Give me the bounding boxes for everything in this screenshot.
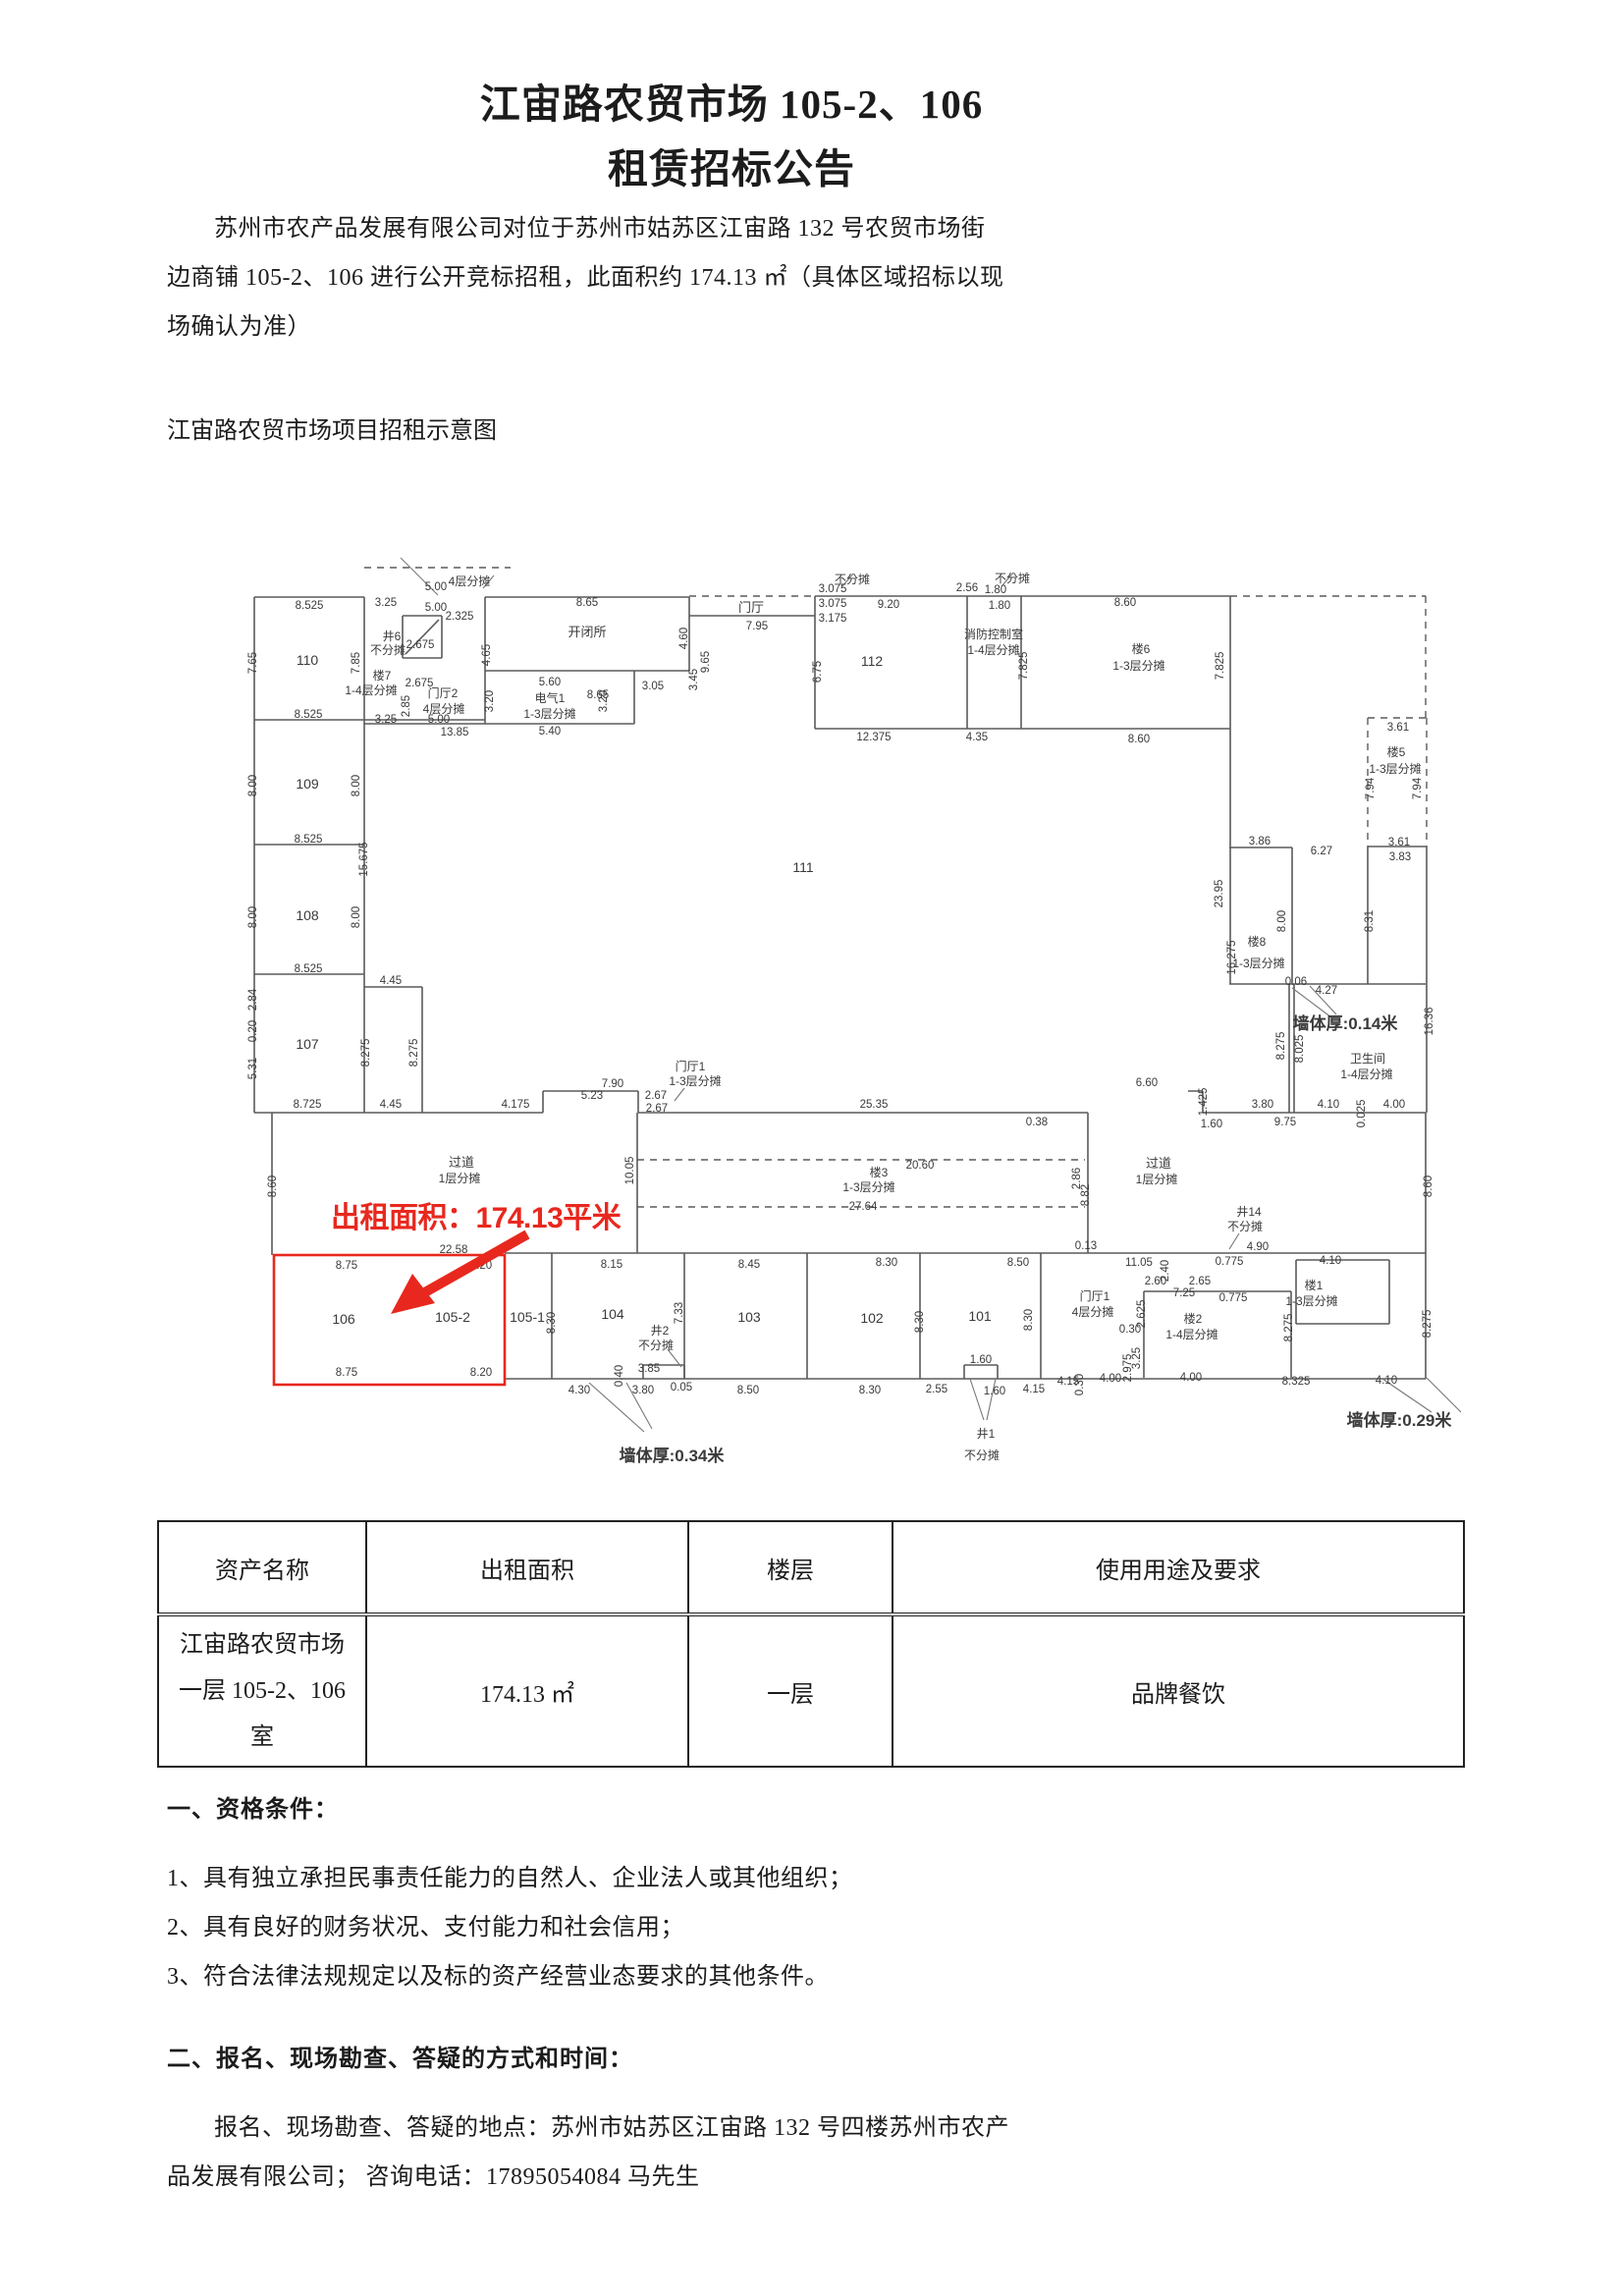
document-page: 江宙路农贸市场 105-2、106 租赁招标公告 苏州市农产品发展有限公司对位于… xyxy=(0,0,1623,2296)
plan-label: 7.825 xyxy=(1018,652,1030,681)
plan-label: 1.80 xyxy=(985,584,1006,596)
plan-label: 卫生间 xyxy=(1350,1052,1385,1066)
room-label: 104 xyxy=(601,1306,624,1322)
floor-plan-diagram: 8.5258.5258.5258.5257.657.858.008.008.00… xyxy=(0,0,1623,1512)
wall xyxy=(964,1365,998,1379)
plan-label: 楼1 xyxy=(1305,1278,1324,1292)
plan-label: 8.025 xyxy=(1294,1035,1306,1064)
plan-label: 4.10 xyxy=(1318,1099,1339,1111)
plan-label: 23.95 xyxy=(1214,880,1225,908)
plan-label: 8.30 xyxy=(914,1311,926,1333)
plan-label: 2.325 xyxy=(446,611,474,623)
plan-label: 1.60 xyxy=(984,1386,1005,1397)
leader-line xyxy=(675,1088,684,1101)
plan-label: 0.30 xyxy=(1074,1374,1086,1395)
plan-label: 3.80 xyxy=(1252,1099,1273,1111)
plan-label: 25.35 xyxy=(860,1099,889,1111)
plan-label: 井2 xyxy=(651,1324,670,1338)
plan-label: 8.275 xyxy=(360,1039,372,1067)
wall xyxy=(1289,984,1426,1113)
plan-label: 13.85 xyxy=(441,727,469,738)
plan-label: 8.30 xyxy=(876,1257,897,1269)
red-arrow-shaft xyxy=(423,1234,527,1293)
plan-label: 8.00 xyxy=(247,775,259,796)
plan-label: 10.05 xyxy=(624,1157,636,1185)
plan-label: 8.60 xyxy=(1128,734,1150,745)
plan-label: 楼3 xyxy=(870,1165,889,1179)
cell-area: 174.13 ㎡ xyxy=(366,1614,688,1767)
plan-label: 5.00 xyxy=(425,602,447,614)
plan-label: 0.20 xyxy=(247,1020,259,1042)
room-label: 105-1 xyxy=(510,1309,545,1325)
room-label: 108 xyxy=(296,907,319,923)
plan-label: 8.50 xyxy=(737,1385,759,1396)
plan-label: 8.275 xyxy=(408,1039,420,1067)
leased-area-annotation: 出租面积：174.13平米 xyxy=(331,1202,622,1234)
plan-label: 1-3层分摊 xyxy=(1369,762,1421,776)
plan-label: 3.175 xyxy=(819,613,847,625)
section1-heading: 一、资格条件： xyxy=(167,1789,339,1824)
plan-label: 不分摊 xyxy=(638,1339,674,1352)
room-label: 112 xyxy=(861,653,884,669)
plan-label: 8.60 xyxy=(267,1175,279,1197)
plan-label: 楼5 xyxy=(1387,744,1406,759)
plan-label: 2.84 xyxy=(247,988,259,1011)
plan-label: 7.33 xyxy=(674,1302,685,1324)
plan-label: 4层分摊 xyxy=(423,702,465,716)
room-label: 105-2 xyxy=(435,1309,470,1325)
plan-label: 1-4层分摊 xyxy=(1340,1067,1392,1081)
plan-label: 8.00 xyxy=(247,906,259,928)
plan-label: 8.525 xyxy=(295,709,323,721)
plan-label: 1-3层分摊 xyxy=(523,707,575,721)
plan-label: 7.25 xyxy=(1173,1287,1195,1299)
plan-label: 井1 xyxy=(977,1427,996,1441)
room-label: 102 xyxy=(860,1310,884,1326)
plan-label: 0.13 xyxy=(1075,1240,1097,1252)
plan-label: 墙体厚:0.14米 xyxy=(1293,1013,1399,1033)
section2-line-1: 报名、现场勘查、答疑的地点：苏州市姑苏区江宙路 132 号四楼苏州市农产 xyxy=(167,2107,1520,2142)
plan-label: 9.75 xyxy=(1274,1117,1296,1128)
plan-label: 门厅1 xyxy=(676,1059,706,1073)
section1-item-1: 1、具有独立承担民事责任能力的自然人、企业法人或其他组织； xyxy=(167,1858,1473,1892)
plan-label: 6.27 xyxy=(1311,846,1332,857)
plan-label: 过道 xyxy=(1146,1156,1171,1171)
plan-label: 3.61 xyxy=(1387,722,1409,734)
plan-label: 4.45 xyxy=(380,1099,402,1111)
plan-label: 5.60 xyxy=(539,677,561,688)
plan-label: 8.15 xyxy=(601,1259,622,1271)
plan-label: 楼6 xyxy=(1132,641,1151,656)
plan-label: 8.30 xyxy=(859,1385,881,1396)
cell-usage: 品牌餐饮 xyxy=(893,1614,1464,1767)
plan-label: 3.80 xyxy=(632,1385,654,1396)
plan-label: 9.65 xyxy=(700,651,712,673)
plan-label: 8.00 xyxy=(1276,910,1288,932)
plan-label: 2.975 xyxy=(1122,1354,1134,1383)
plan-label: 6.60 xyxy=(1136,1077,1158,1089)
plan-label: 4层分摊 xyxy=(449,574,491,588)
plan-label: 0.30 xyxy=(1119,1324,1141,1336)
plan-label: 15.675 xyxy=(358,842,370,876)
plan-label: 8.60 xyxy=(1423,1175,1434,1197)
plan-label: 8.725 xyxy=(294,1099,322,1111)
plan-label: 11.05 xyxy=(1125,1257,1153,1269)
plan-label: 4.90 xyxy=(1247,1241,1269,1253)
section1-item-2: 2、具有良好的财务状况、支付能力和社会信用； xyxy=(167,1907,1473,1941)
plan-label: 楼8 xyxy=(1248,934,1267,949)
plan-label: 3.85 xyxy=(638,1363,660,1375)
plan-label: 0.775 xyxy=(1216,1256,1244,1268)
plan-label: 8.45 xyxy=(738,1259,760,1271)
plan-label: 8.82 xyxy=(1080,1184,1092,1206)
plan-label: 1.60 xyxy=(1201,1119,1222,1130)
plan-label: 1-3层分摊 xyxy=(1285,1294,1337,1308)
plan-label: 8.75 xyxy=(336,1367,357,1379)
room-label: 107 xyxy=(296,1036,319,1052)
plan-label: 开闭所 xyxy=(568,625,606,639)
col-header-floor: 楼层 xyxy=(688,1521,893,1614)
plan-label: 6.75 xyxy=(812,661,824,683)
plan-label: 20.60 xyxy=(906,1160,935,1172)
plan-label: 5.40 xyxy=(539,726,561,738)
plan-label: 9.20 xyxy=(878,599,899,611)
section2-line-2: 品发展有限公司； 咨询电话：17895054084 马先生 xyxy=(167,2157,1473,2191)
plan-label: 2.60 xyxy=(1145,1276,1166,1287)
plan-label: 门厅1 xyxy=(1080,1288,1110,1303)
plan-label: 4.00 xyxy=(1383,1099,1405,1111)
plan-label: 4.175 xyxy=(502,1099,530,1111)
plan-label: 楼7 xyxy=(373,668,392,683)
plan-label: 7.825 xyxy=(1215,652,1226,681)
plan-label: 8.275 xyxy=(1283,1314,1295,1342)
plan-label: 1-3层分摊 xyxy=(1232,957,1284,970)
plan-label: 8.525 xyxy=(295,834,323,846)
plan-label: 4.45 xyxy=(380,975,402,987)
plan-label: 2.67 xyxy=(646,1103,668,1115)
plan-label: 不分摊 xyxy=(964,1449,1000,1462)
plan-label: 12.375 xyxy=(856,732,891,743)
plan-label: 2.67 xyxy=(645,1090,667,1102)
plan-label: 8.275 xyxy=(1275,1032,1287,1061)
plan-label: 门厅2 xyxy=(428,685,459,700)
plan-label: 3.25 xyxy=(375,714,397,726)
plan-label: 8.50 xyxy=(1007,1257,1029,1269)
plan-label: 8.60 xyxy=(1114,597,1136,609)
plan-label: 7.94 xyxy=(1365,777,1377,799)
plan-label: 1.60 xyxy=(970,1354,992,1366)
plan-label: 0.05 xyxy=(671,1382,692,1394)
plan-label: 7.65 xyxy=(247,652,259,674)
plan-label: 3.61 xyxy=(1388,837,1410,848)
plan-label: 5.31 xyxy=(247,1058,259,1079)
plan-label: 0.38 xyxy=(1026,1117,1048,1128)
plan-label: 8.325 xyxy=(1282,1376,1311,1388)
plan-label: 3.05 xyxy=(642,681,664,692)
plan-label: 4.10 xyxy=(1320,1255,1341,1267)
room-label: 101 xyxy=(968,1308,992,1324)
plan-label: 3.45 xyxy=(688,669,700,690)
plan-label: 不分摊 xyxy=(995,572,1030,585)
plan-label: 7.95 xyxy=(746,621,768,632)
plan-label: 2.65 xyxy=(1189,1276,1211,1287)
plan-label: 井6 xyxy=(383,629,402,643)
plan-label: 3.86 xyxy=(1249,836,1271,847)
plan-label: 1-3层分摊 xyxy=(669,1074,721,1088)
table-row: 江宙路农贸市场一层 105-2、106室 174.13 ㎡ 一层 品牌餐饮 xyxy=(158,1614,1464,1767)
plan-label: 8.00 xyxy=(351,906,362,928)
col-header-usage: 使用用途及要求 xyxy=(893,1521,1464,1614)
plan-label: 3.25 xyxy=(375,597,397,609)
plan-label: 4.10 xyxy=(1376,1375,1397,1387)
room-label: 109 xyxy=(296,776,319,792)
plan-label: 不分摊 xyxy=(370,643,406,657)
room-label: 106 xyxy=(332,1311,355,1327)
plan-label: 1.425 xyxy=(1198,1088,1210,1117)
plan-label: 4.35 xyxy=(966,732,988,743)
plan-label: 楼2 xyxy=(1184,1311,1203,1326)
cell-floor: 一层 xyxy=(688,1614,893,1767)
plan-label: 8.65 xyxy=(576,597,598,609)
plan-label: 墙体厚:0.29米 xyxy=(1347,1410,1453,1430)
asset-table: 资产名称 出租面积 楼层 使用用途及要求 江宙路农贸市场一层 105-2、106… xyxy=(157,1520,1465,1768)
plan-label: 16.36 xyxy=(1424,1008,1435,1036)
room-label: 103 xyxy=(737,1309,761,1325)
plan-label: 7.85 xyxy=(351,652,362,674)
plan-label: 过道 xyxy=(449,1155,474,1170)
plan-label: 0.775 xyxy=(1219,1292,1248,1304)
plan-label: 1-4层分摊 xyxy=(967,643,1019,657)
plan-label: 1-3层分摊 xyxy=(842,1180,894,1194)
table-header-row: 资产名称 出租面积 楼层 使用用途及要求 xyxy=(158,1521,1464,1614)
plan-label: 井14 xyxy=(1236,1205,1262,1219)
section1-item-3: 3、符合法律法规规定以及标的资产经营业态要求的其他条件。 xyxy=(167,1956,1473,1991)
plan-label: 4.15 xyxy=(1023,1384,1045,1395)
plan-label: 7.90 xyxy=(602,1078,623,1090)
plan-label: 2.675 xyxy=(406,639,435,651)
plan-label: 0.06 xyxy=(1285,976,1307,988)
wall-dashed xyxy=(1230,596,1426,718)
plan-label: 8.275 xyxy=(1422,1310,1434,1339)
plan-label: 4.27 xyxy=(1316,985,1337,997)
plan-label: 1-4层分摊 xyxy=(1165,1328,1217,1341)
plan-label: 8.525 xyxy=(295,963,323,975)
plan-label: 8.30 xyxy=(546,1312,558,1334)
plan-label: 0.40 xyxy=(614,1365,625,1387)
plan-label: 8.30 xyxy=(1023,1309,1035,1331)
plan-label: 8.75 xyxy=(336,1260,357,1272)
cell-asset-name: 江宙路农贸市场一层 105-2、106室 xyxy=(158,1614,366,1767)
plan-label: 8.20 xyxy=(470,1367,492,1379)
plan-label: 7.94 xyxy=(1412,777,1424,799)
plan-label: 8.31 xyxy=(1364,910,1376,932)
plan-label: 4.00 xyxy=(1100,1373,1121,1385)
plan-label: 8.525 xyxy=(296,600,324,612)
wall xyxy=(403,616,442,658)
plan-label: 墙体厚:0.34米 xyxy=(620,1446,726,1465)
plan-label: 3.20 xyxy=(598,690,610,712)
room-label: 110 xyxy=(297,652,319,668)
plan-label: 5.23 xyxy=(581,1090,603,1102)
plan-label: 门厅 xyxy=(738,600,764,615)
plan-label: 8.00 xyxy=(351,775,362,796)
plan-label: 1层分摊 xyxy=(439,1172,481,1185)
plan-label: 3.075 xyxy=(819,598,847,610)
plan-label: 4.60 xyxy=(678,628,690,649)
col-header-asset-name: 资产名称 xyxy=(158,1521,366,1614)
room-label: 111 xyxy=(792,859,813,875)
plan-label: 不分摊 xyxy=(835,573,870,586)
plan-label: 1层分摊 xyxy=(1136,1173,1178,1186)
plan-label: 1-3层分摊 xyxy=(1112,659,1164,673)
plan-label: 2.85 xyxy=(401,695,412,717)
plan-label: 27.64 xyxy=(849,1201,878,1213)
leader-line xyxy=(1229,1233,1239,1249)
plan-label: 2.55 xyxy=(926,1384,947,1395)
plan-label: 消防控制室 xyxy=(964,627,1023,641)
plan-label: 不分摊 xyxy=(1227,1220,1263,1233)
plan-label: 1.80 xyxy=(989,600,1010,612)
plan-label: 2.56 xyxy=(956,582,978,594)
plan-label: 4.00 xyxy=(1180,1372,1202,1384)
plan-label: 1-4层分摊 xyxy=(345,683,397,697)
plan-label: 3.83 xyxy=(1389,851,1411,863)
section2-heading: 二、报名、现场勘查、答疑的方式和时间： xyxy=(167,2039,633,2073)
plan-label: 3.20 xyxy=(484,690,496,712)
plan-label: 4.30 xyxy=(568,1385,590,1396)
col-header-area: 出租面积 xyxy=(366,1521,688,1614)
plan-label: 4层分摊 xyxy=(1072,1305,1114,1319)
plan-label: 4.65 xyxy=(481,644,493,666)
plan-label: 5.00 xyxy=(425,581,447,593)
plan-label: 0.025 xyxy=(1356,1100,1368,1128)
plan-label: 电气1 xyxy=(535,690,566,705)
